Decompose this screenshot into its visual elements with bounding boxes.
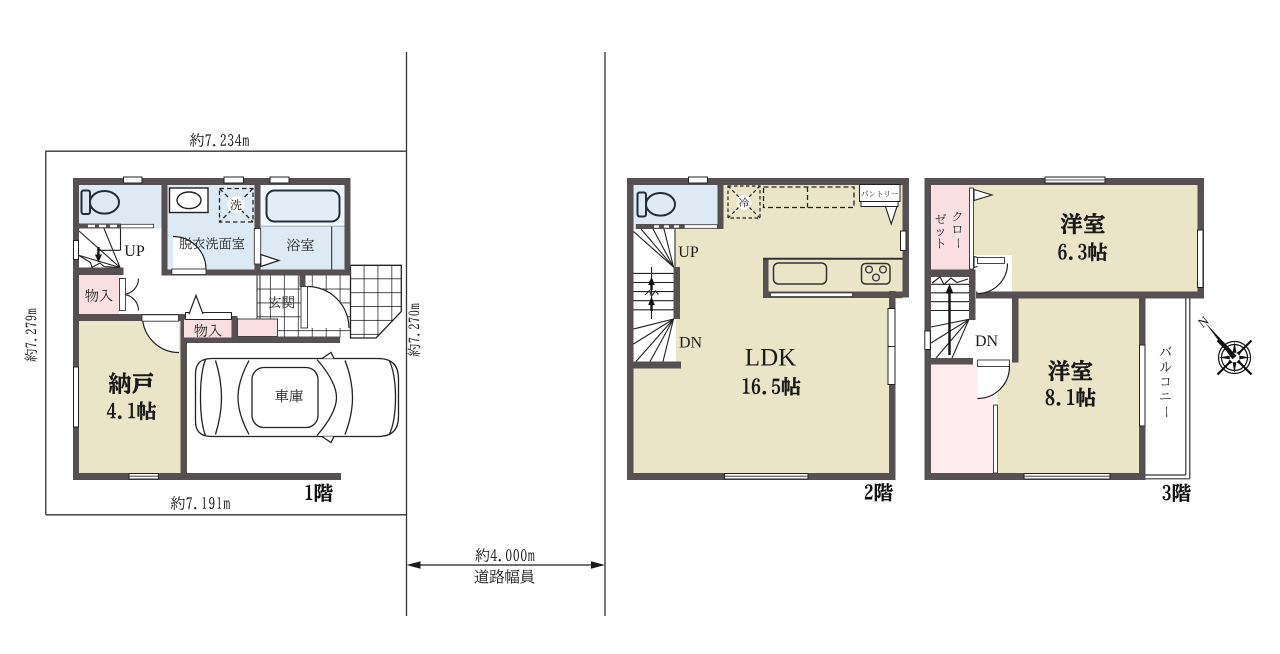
svg-text:DN: DN [975,333,999,350]
svg-text:UP: UP [678,244,699,261]
svg-text:DN: DN [679,335,703,352]
svg-text:LDK: LDK [745,345,796,372]
svg-text:UP: UP [124,243,145,260]
